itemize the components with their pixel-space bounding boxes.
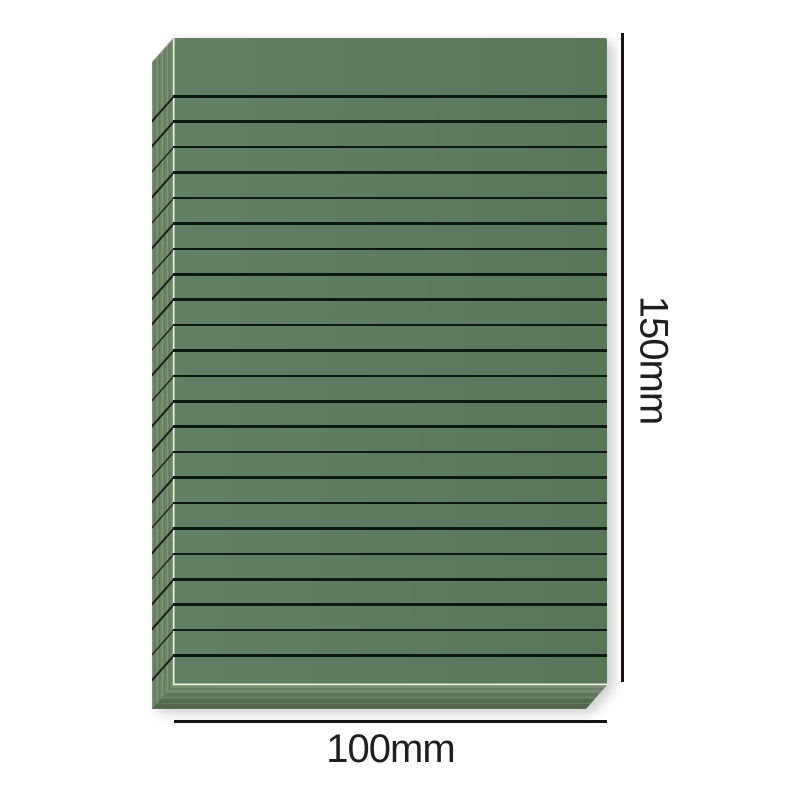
pad-left-edge xyxy=(152,38,173,710)
ruled-line xyxy=(152,121,173,147)
ruled-line xyxy=(173,451,607,454)
ruled-line xyxy=(173,248,607,251)
ruled-line xyxy=(173,273,607,276)
ruled-line xyxy=(173,400,607,403)
ruled-line xyxy=(152,477,173,503)
width-dimension-label: 100mm xyxy=(174,727,607,772)
ruled-line xyxy=(152,630,173,656)
ruled-line xyxy=(152,426,173,452)
pad-front-face xyxy=(173,38,607,685)
ruled-line xyxy=(173,324,607,327)
ruled-line xyxy=(152,350,173,376)
ruled-line xyxy=(173,603,607,606)
pad-bottom-edge xyxy=(152,685,607,709)
ruled-line xyxy=(152,376,173,402)
ruled-line xyxy=(173,197,607,200)
ruled-line xyxy=(173,298,607,301)
ruled-line xyxy=(173,349,607,352)
ruled-line xyxy=(173,578,607,581)
ruled-line xyxy=(152,604,173,630)
ruled-line xyxy=(152,172,173,198)
ruled-line xyxy=(152,579,173,605)
ruled-line xyxy=(152,96,173,122)
pad-front-lines xyxy=(173,38,607,685)
ruled-line xyxy=(173,553,607,556)
ruled-line xyxy=(173,476,607,479)
ruled-line xyxy=(173,629,607,632)
ruled-line xyxy=(173,425,607,428)
ruled-line xyxy=(173,120,607,123)
ruled-line xyxy=(152,503,173,529)
ruled-line xyxy=(152,147,173,173)
height-dimension-label: 150mm xyxy=(631,296,676,424)
ruled-line xyxy=(152,401,173,427)
ruled-line xyxy=(152,223,173,249)
ruled-line xyxy=(173,222,607,225)
ruled-line xyxy=(173,502,607,505)
ruled-line xyxy=(173,171,607,174)
ruled-line xyxy=(152,554,173,580)
ruled-line xyxy=(152,198,173,224)
ruled-line xyxy=(152,528,173,554)
ruled-line xyxy=(152,274,173,300)
height-dimension-line xyxy=(621,33,624,682)
ruled-line xyxy=(173,654,607,657)
ruled-line xyxy=(152,452,173,478)
ruled-line xyxy=(152,325,173,351)
ruled-line xyxy=(152,299,173,325)
product-image: 150mm 100mm xyxy=(0,0,800,800)
pad-left-edge-lines xyxy=(152,39,173,710)
width-dimension-line xyxy=(174,720,607,723)
ruled-line xyxy=(152,655,173,681)
ruled-line xyxy=(173,527,607,530)
ruled-line xyxy=(173,95,607,98)
ruled-line xyxy=(173,375,607,378)
ruled-line xyxy=(173,146,607,149)
note-pad xyxy=(0,0,800,800)
ruled-line xyxy=(152,249,173,275)
